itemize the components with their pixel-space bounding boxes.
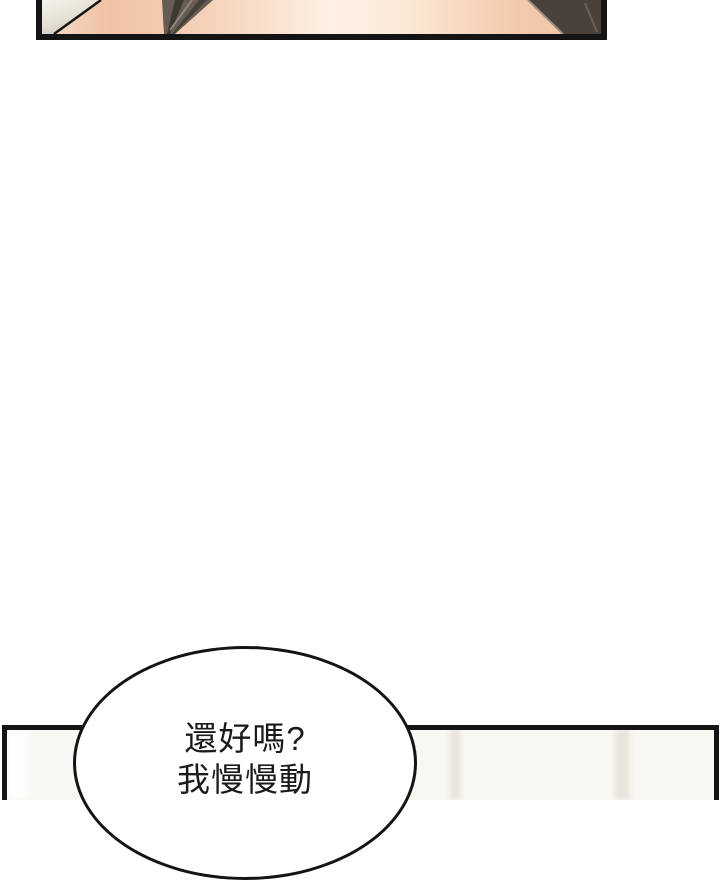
wall-stripe-right — [615, 730, 629, 800]
wall-stripe-left — [450, 730, 460, 800]
speech-text-line1: 還好嗎? — [177, 718, 313, 759]
speech-text-line2: 我慢慢動 — [177, 759, 313, 800]
comic-panel-top — [36, 0, 607, 40]
speech-bubble: 還好嗎? 我慢慢動 — [73, 646, 417, 880]
speech-text: 還好嗎? 我慢慢動 — [177, 718, 313, 800]
wall-highlight-stripe — [7, 730, 29, 800]
comic-panel-top-art — [42, 0, 601, 34]
skin-background-art — [42, 0, 601, 34]
